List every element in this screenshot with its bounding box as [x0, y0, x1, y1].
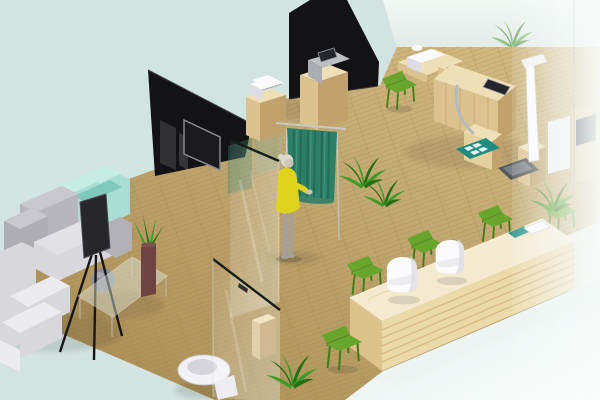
toilet-seat [187, 359, 217, 375]
wall-reflection [160, 120, 176, 170]
hair-bun [278, 154, 284, 160]
clinic-3d-render [0, 0, 600, 400]
head [284, 158, 293, 167]
white-chair [387, 256, 420, 305]
hand [306, 190, 313, 195]
isometric-interior-illustration [0, 0, 600, 400]
display-screen [80, 194, 110, 258]
white-chair [436, 239, 467, 285]
